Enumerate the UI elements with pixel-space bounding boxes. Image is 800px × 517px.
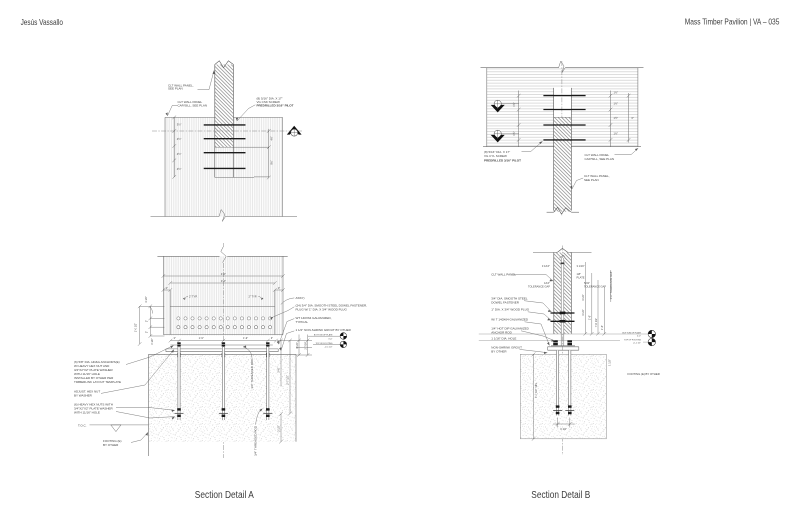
svg-text:1½": 1½" [614,102,619,106]
svg-text:0'-0": 0'-0" [637,335,641,337]
svg-text:T.O.C.: T.O.C. [78,424,87,428]
svg-text:3 1/16": 3 1/16" [542,264,550,268]
svg-text:3": 3" [278,286,280,290]
svg-text:PREDRILLED 3/16" PILOT: PREDRILLED 3/16" PILOT [484,159,521,163]
svg-text:1 1/2" NON-SHRINK GROUT BY OTH: 1 1/2" NON-SHRINK GROUT BY OTHER [296,328,352,332]
svg-text:W/ T 140X64 GALVANIZED: W/ T 140X64 GALVANIZED [491,318,529,322]
svg-text:3'-6": 3'-6" [221,279,226,283]
svg-text:CLT WALL PANEL: CLT WALL PANEL [491,273,516,277]
svg-text:1½": 1½" [614,91,619,95]
svg-text:7'-6 1/2": 7'-6 1/2" [594,318,598,328]
svg-text:ASSY): ASSY) [296,296,305,300]
svg-text:WITH 11/16" HOLE: WITH 11/16" HOLE [74,410,100,414]
svg-text:BY OTHER: BY OTHER [491,349,507,353]
svg-text:1½": 1½" [512,131,516,136]
svg-text:3/4" THREADED ROD: 3/4" THREADED ROD [254,425,258,456]
svg-text:Jesús Vassallo: Jesús Vassallo [21,18,64,27]
svg-text:TOP OF FOOTING: TOP OF FOOTING [624,340,641,342]
svg-text:3": 3" [174,336,176,340]
svg-text:-0'-1 1/2": -0'-1 1/2" [325,347,333,349]
svg-text:4½": 4½" [177,152,182,156]
svg-text:2'-6": 2'-6" [277,367,281,372]
svg-text:3 1/16": 3 1/16" [577,264,585,268]
svg-text:1'-6": 1'-6" [588,315,592,320]
svg-text:4 1/2": 4 1/2" [581,294,585,301]
svg-text:4 1/2": 4 1/2" [145,296,148,303]
svg-text:1'-9": 1'-9" [199,336,204,340]
svg-text:2'-7 1/2": 2'-7 1/2" [286,375,290,385]
svg-text:TYPICAL: TYPICAL [296,320,309,324]
svg-text:1'-6": 1'-6" [600,325,604,330]
svg-text:3": 3" [145,320,148,322]
svg-text:5/32": 5/32" [584,281,590,285]
svg-text:6 1/2": 6 1/2" [560,427,567,431]
svg-text:Section Detail A: Section Detail A [195,490,254,501]
svg-text:1 1/2": 1 1/2" [608,359,612,366]
svg-text:PLATE: PLATE [577,276,585,280]
svg-text:0'-0": 0'-0" [329,338,333,340]
svg-text:4½": 4½" [177,137,182,141]
svg-text:SEE PLAN: SEE PLAN [168,87,183,91]
svg-text:-0'-1 1/2": -0'-1 1/2" [633,343,641,345]
svg-text:BY OTHER: BY OTHER [103,443,119,447]
svg-text:PREDRILLED 3/16" PILOT: PREDRILLED 3/16" PILOT [257,103,294,107]
svg-text:1½": 1½" [614,116,619,120]
svg-text:1'-7 1/2" MIN.: 1'-7 1/2" MIN. [534,382,538,398]
svg-text:CAP/SILL, SEE PLAN: CAP/SILL, SEE PLAN [178,104,208,108]
svg-text:FOOTING (E) BY OTHER: FOOTING (E) BY OTHER [628,372,660,376]
svg-text:4 1/2": 4 1/2" [295,342,299,349]
svg-text:ANCHOR ROD: ANCHOR ROD [491,331,512,335]
svg-text:BY WASHER: BY WASHER [74,393,93,397]
svg-text:2" TYP.: 2" TYP. [189,295,198,299]
svg-text:3½": 3½" [177,122,182,126]
svg-text:1/16": 1/16" [544,281,550,285]
svg-text:6": 6" [632,116,634,120]
svg-text:4'-0": 4'-0" [221,272,226,276]
svg-text:4½": 4½" [177,167,182,171]
svg-text:3 1/2": 3 1/2" [151,338,154,345]
svg-text:1'-9": 1'-9" [243,336,248,340]
svg-text:8¼": 8¼" [270,160,274,165]
svg-text:4½": 4½" [270,136,274,141]
svg-text:TIMBERLINK LAYOUT TEMPLATE: TIMBERLINK LAYOUT TEMPLATE [74,380,121,384]
svg-text:DOWEL FASTENER: DOWEL FASTENER [491,301,519,305]
svg-text:3": 3" [145,331,148,333]
svg-text:CAP/SILL, SEE PLAN: CAP/SILL, SEE PLAN [585,157,615,161]
svg-text:1 1/16" DIA. HOLE: 1 1/16" DIA. HOLE [491,337,516,341]
svg-text:3 1/2": 3 1/2" [277,425,281,432]
svg-text:1½": 1½" [614,132,619,136]
svg-text:1'-0 1/2": 1'-0 1/2" [135,323,138,332]
svg-text:1½": 1½" [512,102,516,107]
svg-text:4 1/2": 4 1/2" [581,309,585,316]
svg-text:1" DIA. X 3/4" WOOD PLUG: 1" DIA. X 3/4" WOOD PLUG [491,308,529,312]
svg-text:Section Detail B: Section Detail B [531,490,590,501]
svg-text:3": 3" [166,286,168,290]
svg-text:TOLERANCE GAP: TOLERANCE GAP [584,284,606,288]
svg-text:TOLERANCE GAP: TOLERANCE GAP [528,284,550,288]
svg-text:Mass Timber Pavilion | VA – 03: Mass Timber Pavilion | VA – 035 [685,18,780,27]
svg-text:2 7/16": 2 7/16" [303,341,307,349]
svg-text:1/8": 1/8" [577,272,582,276]
svg-text:BOTTOM OF PLATE: BOTTOM OF PLATE [622,331,641,334]
svg-text:3/4" THREADED ROD: 3/4" THREADED ROD [250,358,254,389]
svg-text:3": 3" [271,336,273,340]
svg-text:2" TYP.: 2" TYP. [249,295,258,299]
svg-text:SEE PLAN: SEE PLAN [584,178,599,182]
svg-text:PLUG W/ 1" DIA. X 3/4" WOOD PL: PLUG W/ 1" DIA. X 3/4" WOOD PLUG [296,308,348,312]
svg-text:BOTTOM OF PLATE: BOTTOM OF PLATE [314,333,333,336]
